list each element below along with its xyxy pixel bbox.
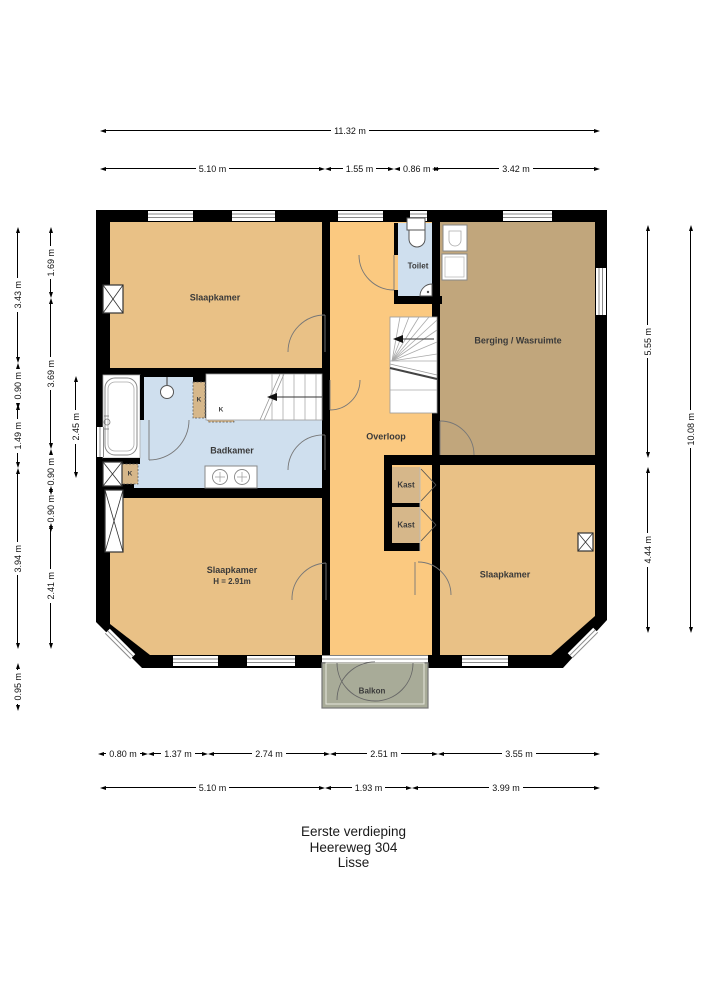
dim-label: 1.69 m xyxy=(46,246,56,280)
dim-left-inner-5: 2.41 m xyxy=(46,523,55,649)
label-storage: Berging / Wasruimte xyxy=(474,336,561,347)
dim-label: 0.90 m xyxy=(46,492,56,526)
dim-label: 1.55 m xyxy=(343,164,377,174)
dim-bottom-detail-2: 1.37 m xyxy=(148,749,208,758)
dim-bottom-detail-5: 3.55 m xyxy=(438,749,600,758)
toilet-icon xyxy=(407,218,425,247)
label-bedroom-bl-name: Slaapkamer xyxy=(207,565,258,576)
dim-top-seg-3: 0.86 m xyxy=(394,164,432,173)
wall xyxy=(96,488,330,498)
dim-left-outer-4: 3.94 m xyxy=(13,468,22,649)
dim-right-inner-1: 5.55 m xyxy=(643,225,652,458)
room-fills xyxy=(103,222,595,655)
wall xyxy=(384,465,392,551)
shaft-icon xyxy=(578,533,593,551)
dim-label: 0.90 m xyxy=(13,369,23,403)
wall xyxy=(392,503,420,507)
window xyxy=(462,656,508,666)
label-bedroom-br: Slaapkamer xyxy=(480,570,531,581)
label-k3: K xyxy=(128,471,133,478)
dim-top-seg-1: 5.10 m xyxy=(100,164,325,173)
wall xyxy=(103,368,322,374)
wall xyxy=(384,455,595,465)
label-k1: K xyxy=(197,397,202,404)
dim-label: 1.37 m xyxy=(161,749,195,759)
wall xyxy=(322,600,330,655)
dim-label: 5.10 m xyxy=(196,783,230,793)
dim-label: 2.45 m xyxy=(71,410,81,444)
wall xyxy=(432,465,440,562)
window xyxy=(148,211,193,221)
dim-label: 11.32 m xyxy=(331,126,369,136)
dim-label: 3.94 m xyxy=(13,542,23,576)
dim-bottom-main-3: 3.99 m xyxy=(412,783,600,792)
dim-label: 3.99 m xyxy=(489,783,523,793)
label-closet-a: Kast xyxy=(397,480,414,491)
window xyxy=(503,211,552,221)
dim-label: 3.55 m xyxy=(502,749,536,759)
dim-top-seg-4: 3.42 m xyxy=(432,164,600,173)
wall xyxy=(322,222,330,315)
label-bedroom-bl-height: H = 2.91m xyxy=(207,576,258,587)
dim-bottom-detail-1: 0.80 m xyxy=(98,749,148,758)
window xyxy=(173,656,218,666)
bedroom-br-floor xyxy=(440,465,595,655)
dim-label: 0.90 m xyxy=(46,455,56,489)
title-level: Eerste verdieping xyxy=(0,824,707,840)
dim-left-outer-1: 3.43 m xyxy=(13,227,22,363)
dim-label: 10.08 m xyxy=(686,410,696,449)
label-k2: K xyxy=(219,407,224,414)
shaft-icon xyxy=(105,490,123,552)
label-bathroom: Badkamer xyxy=(210,446,254,457)
dim-label: 3.43 m xyxy=(13,278,23,312)
dim-label: 0.86 m xyxy=(400,164,434,174)
label-closet-b: Kast xyxy=(397,520,414,531)
label-toilet: Toilet xyxy=(408,261,429,272)
label-balcony: Balkon xyxy=(359,686,386,697)
wall xyxy=(322,470,330,563)
shaft-icon xyxy=(103,462,122,486)
dim-right-outer: 10.08 m xyxy=(686,225,695,633)
wall xyxy=(140,375,144,420)
dim-label: 3.42 m xyxy=(499,164,533,174)
dim-label: 1.49 m xyxy=(13,419,23,453)
dim-label: 5.55 m xyxy=(643,325,653,359)
dim-bottom-main-2: 1.93 m xyxy=(325,783,412,792)
dim-left-outer-3: 1.49 m xyxy=(13,404,22,468)
washer-icon xyxy=(442,254,467,280)
dim-label: 2.51 m xyxy=(367,749,401,759)
dim-top-total: 11.32 m xyxy=(100,126,600,135)
window xyxy=(338,211,383,221)
dim-label: 2.41 m xyxy=(46,569,56,603)
title-block: Eerste verdieping Heereweg 304 Lisse xyxy=(0,824,707,871)
wall xyxy=(432,600,440,655)
shaft-icon xyxy=(103,285,123,313)
double-sink-icon xyxy=(205,466,257,488)
dim-left-outer-5: 0.95 m xyxy=(13,663,22,711)
wall xyxy=(322,352,330,380)
dim-left-outer-2: 0.90 m xyxy=(13,363,22,404)
dim-top-seg-2: 1.55 m xyxy=(325,164,394,173)
dim-bottom-main-1: 5.10 m xyxy=(100,783,325,792)
label-landing: Overloop xyxy=(366,432,406,443)
balcony xyxy=(322,656,428,709)
dim-left-inner-1: 1.69 m xyxy=(46,227,55,298)
wall xyxy=(392,543,420,551)
dim-label: 1.93 m xyxy=(352,783,386,793)
dim-bottom-detail-4: 2.51 m xyxy=(330,749,438,758)
floorplan-drawing: Slaapkamer Toilet Berging / Wasruimte Ov… xyxy=(96,210,607,710)
dim-right-inner-2: 4.44 m xyxy=(643,467,652,633)
wall xyxy=(322,410,330,435)
dim-left-inner-2: 3.69 m xyxy=(46,298,55,449)
window xyxy=(247,656,295,666)
floorplan-page: 11.32 m 5.10 m 1.55 m 0.86 m 3.42 m 0.80… xyxy=(0,0,707,1000)
dim-label: 0.95 m xyxy=(13,670,23,704)
window xyxy=(232,211,275,221)
laundry-sink-icon xyxy=(443,225,467,251)
dim-left-inner-3: 0.90 m xyxy=(46,449,55,486)
bathtub-icon xyxy=(104,378,137,455)
dim-bottom-detail-3: 2.74 m xyxy=(208,749,330,758)
dim-label: 4.44 m xyxy=(643,533,653,567)
label-bedroom-bl: Slaapkamer H = 2.91m xyxy=(207,565,258,587)
window xyxy=(596,268,606,315)
dim-left-inner-4: 0.90 m xyxy=(46,486,55,523)
dim-label: 2.74 m xyxy=(252,749,286,759)
title-street: Heereweg 304 xyxy=(0,840,707,856)
wall xyxy=(394,223,398,255)
floorplan-svg xyxy=(96,210,607,710)
title-city: Lisse xyxy=(0,855,707,871)
dim-label: 0.80 m xyxy=(106,749,140,759)
label-bedroom-tl: Slaapkamer xyxy=(190,293,241,304)
dim-left-detail: 2.45 m xyxy=(71,376,80,478)
dim-label: 3.69 m xyxy=(46,357,56,391)
dim-label: 5.10 m xyxy=(196,164,230,174)
